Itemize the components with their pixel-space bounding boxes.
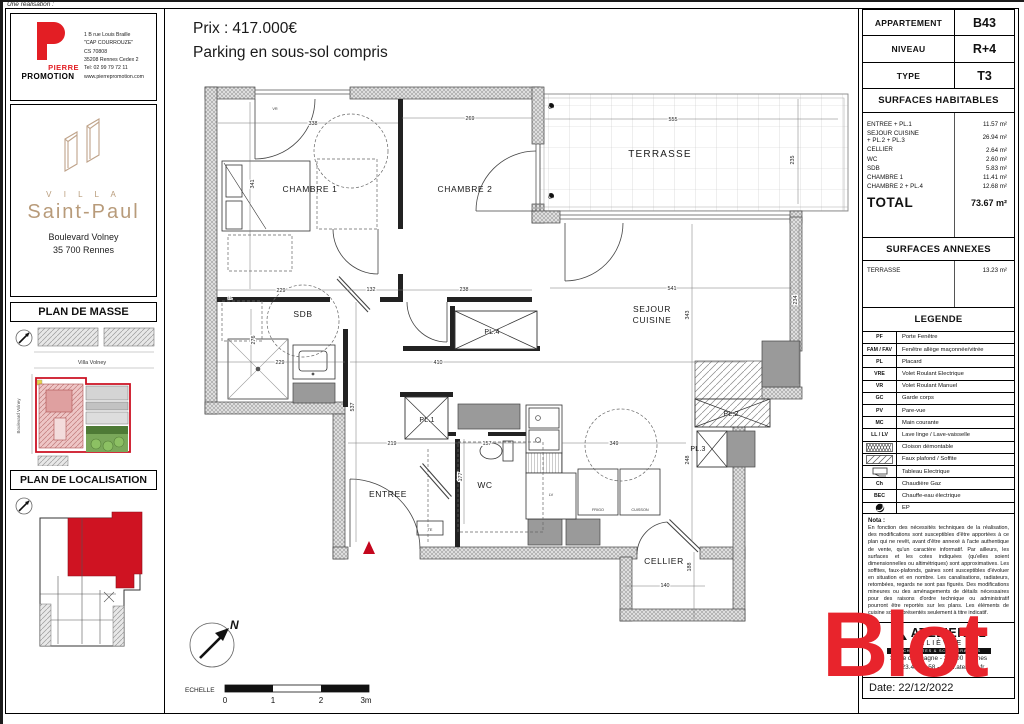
annotation: TE <box>428 528 433 532</box>
total-label: TOTAL <box>863 195 955 210</box>
surface-label: SDB <box>863 165 955 172</box>
scale-tick: 1 <box>271 696 276 705</box>
room-labels: CHAMBRE 1CHAMBRE 2TERRASSESDBSEJOURCUISI… <box>283 149 739 566</box>
info-value: T3 <box>955 63 1014 89</box>
project-name: Saint-Paul <box>11 201 156 224</box>
legend-code: VRE <box>863 368 897 379</box>
surfaces-habitables-table: ENTREE + PL.111.57 m²SEJOUR CUISINE + PL… <box>862 112 1015 238</box>
surface-label: CHAMBRE 2 + PL.4 <box>863 183 955 190</box>
surface-label: CELLIER <box>863 146 955 153</box>
surface-value: 11.41 m² <box>955 174 1014 181</box>
room-label: SDB <box>293 309 312 319</box>
annex-label: TERRASSE <box>863 267 955 274</box>
legend-row: LL / LVLave linge / Lave-vaisselle <box>862 428 1015 441</box>
surface-value: 2.60 m² <box>955 156 1014 163</box>
dimension: 132 <box>367 287 376 293</box>
legend-label: Tableau Electrique <box>897 466 1014 477</box>
duct <box>762 341 800 387</box>
dimension: 269 <box>466 116 475 122</box>
promoter-block: PIERRE PROMOTION 1 B rue Louis Braille "… <box>10 13 157 101</box>
legend-code: FAM / FAV <box>863 344 897 355</box>
ep-icon <box>863 503 897 514</box>
legend-code: PF <box>863 332 897 343</box>
dimension: 177 <box>458 473 464 482</box>
room-label: SEJOURCUISINE <box>633 304 672 325</box>
plan-de-masse-map: Villa Volney Boulevard Volney <box>12 326 156 466</box>
apartment-info-table: APPARTEMENTB43NIVEAUR+4TYPET3 <box>862 9 1015 90</box>
realisation-label: Une réalisation : <box>7 1 54 8</box>
dimension: 238 <box>460 287 469 293</box>
surface-value: 11.57 m² <box>955 121 1014 128</box>
surfaces-annexes-table: TERRASSE13.23 m² <box>862 260 1015 308</box>
dimension: 410 <box>434 360 443 366</box>
legend-row: ChChaudière Gaz <box>862 477 1015 490</box>
duct <box>528 519 562 545</box>
legend-label: EP <box>897 503 1014 514</box>
legend-label: Lave linge / Lave-vaisselle <box>897 429 1014 440</box>
plan-de-masse-title: PLAN DE MASSE <box>10 302 157 322</box>
surface-row: SEJOUR CUISINE + PL.2 + PL.326.94 m² <box>863 130 1014 145</box>
surface-value: 26.94 m² <box>955 134 1014 141</box>
surface-row: CHAMBRE 2 + PL.412.68 m² <box>863 183 1014 190</box>
price-label: Prix : <box>193 20 228 37</box>
legend-code: BEC <box>863 490 897 501</box>
room-label: PL.4 <box>484 329 499 336</box>
page-edge-left <box>0 0 3 724</box>
promoter-address: 1 B rue Louis Braille "CAP COURROUZE" CS… <box>84 22 153 81</box>
scale-tick: 2 <box>319 696 324 705</box>
legend-label: Faux plafond / Soffite <box>897 454 1014 465</box>
info-label: NIVEAU <box>863 36 955 62</box>
scale-tick: 3m <box>360 696 371 705</box>
legend-row: BECChauffe-eau électrique <box>862 489 1015 502</box>
duct <box>458 404 520 429</box>
legend-row: VREVolet Roulant Electrique <box>862 367 1015 380</box>
address-line: "CAP COURROUZE" <box>84 39 153 47</box>
legend-label: Chauffe-eau électrique <box>897 490 1014 501</box>
dimension: 188 <box>687 563 693 572</box>
legend-row: Tableau Electrique <box>862 465 1015 478</box>
room-label: CELLIER <box>644 556 684 566</box>
plan-de-localisation-map <box>12 494 156 710</box>
room-label: PL.2 <box>723 411 738 418</box>
villa-logo-icon <box>53 117 115 181</box>
nota-title: Nota : <box>868 518 1009 524</box>
surface-value: 2.64 m² <box>955 147 1014 154</box>
dimension: 235 <box>790 156 796 165</box>
project-address1: Boulevard Volney <box>11 231 156 244</box>
duct <box>727 431 755 467</box>
plan-sheet: Une réalisation : PIERRE PROMOTION 1 B r… <box>0 0 1024 724</box>
north-label: N <box>230 618 239 632</box>
duct <box>566 519 600 545</box>
surface-row: CELLIER2.64 m² <box>863 146 1014 153</box>
address-line: Tel: 02 99 79 72 11 <box>84 64 153 72</box>
legend-row: Cloison démontable <box>862 441 1015 454</box>
dimension: 341 <box>250 180 256 189</box>
surface-value: 12.68 m² <box>955 183 1014 190</box>
legend-label: Placard <box>897 356 1014 367</box>
surface-row: CHAMBRE 111.41 m² <box>863 174 1014 181</box>
annotation: LV <box>549 493 554 497</box>
scale-ticks: 0123m <box>223 696 372 705</box>
room-label: PL.3 <box>690 446 705 453</box>
surfaces-habitables-title: SURFACES HABITABLES <box>862 88 1015 113</box>
legend-row: GCGarde corps <box>862 392 1015 405</box>
info-row: NIVEAUR+4 <box>862 35 1015 63</box>
price-line: Prix :417.000€ <box>193 20 297 38</box>
page-edge-top <box>0 0 1024 2</box>
surface-row: ENTREE + PL.111.57 m² <box>863 121 1014 128</box>
legend-label: Chaudière Gaz <box>897 478 1014 489</box>
dimension: 219 <box>388 441 397 447</box>
legend-code: PV <box>863 405 897 416</box>
total-value: 73.67 m² <box>955 198 1014 208</box>
annex-value: 13.23 m² <box>955 267 1014 274</box>
info-row: APPARTEMENTB43 <box>862 9 1015 37</box>
surface-row: SDB5.83 m² <box>863 165 1014 172</box>
legend-label: Cloison démontable <box>897 442 1014 453</box>
annotation: FRIGO <box>592 508 604 512</box>
room-label: CHAMBRE 1 <box>283 184 338 194</box>
pierre-promotion-logo-icon <box>31 22 65 60</box>
price-value: 417.000€ <box>232 20 297 37</box>
annex-row: TERRASSE13.23 m² <box>863 267 1014 274</box>
crosshatch-icon <box>863 442 897 453</box>
legend-code: VR <box>863 381 897 392</box>
legend-code: PL <box>863 356 897 367</box>
dimension: 343 <box>685 311 691 320</box>
dimension: 248 <box>685 456 691 465</box>
legend-row: EP <box>862 502 1015 515</box>
legend-label: Volet Roulant Electrique <box>897 368 1014 379</box>
room-label: CHAMBRE 2 <box>438 184 493 194</box>
legend-label: Fenêtre allège maçonnée/vitrée <box>897 344 1014 355</box>
address-line: www.pierrepromotion.com <box>84 73 153 81</box>
soffite-area <box>695 361 762 399</box>
surface-label: WC <box>863 156 955 163</box>
legend-row: PFPorte Fenêtre <box>862 331 1015 344</box>
project-block: V I L L A Saint-Paul Boulevard Volney 35… <box>10 104 157 297</box>
surface-label: CHAMBRE 1 <box>863 174 955 181</box>
room-label: TERRASSE <box>628 149 692 160</box>
legend-row: VRVolet Roulant Manuel <box>862 380 1015 393</box>
room-label: ENTREE <box>369 489 407 499</box>
dimension: 140 <box>661 583 670 589</box>
address-line: 1 B rue Louis Braille <box>84 31 153 39</box>
promoter-logo: PIERRE PROMOTION <box>17 22 79 81</box>
total-row: TOTAL 73.67 m² <box>863 195 1014 210</box>
legende-title: LEGENDE <box>862 307 1015 332</box>
parking-subtitle: Parking en sous-sol compris <box>193 44 388 62</box>
address-line: 35208 Rennes Cedex 2 <box>84 56 153 64</box>
project-villa-word: V I L L A <box>11 190 156 199</box>
annotation: LL <box>228 296 232 300</box>
sidebar-separator <box>164 8 165 713</box>
dimension: 229 <box>276 360 285 366</box>
info-value: B43 <box>955 10 1014 36</box>
address-line: CS 70808 <box>84 48 153 56</box>
dimension: 157 <box>483 441 492 447</box>
entrance-marker <box>363 541 375 554</box>
blot-watermark: Blot <box>822 602 985 689</box>
legend-row: FAM / FAVFenêtre allège maçonnée/vitrée <box>862 343 1015 356</box>
masse-road-label: Boulevard Volney <box>16 398 21 434</box>
legend-label: Porte Fenêtre <box>897 332 1014 343</box>
legend-row: MCMain courante <box>862 416 1015 429</box>
legend-label: Main courante <box>897 417 1014 428</box>
dimension: 234 <box>793 296 799 305</box>
legend-label: Garde corps <box>897 393 1014 404</box>
diagonal-icon <box>863 454 897 465</box>
info-value: R+4 <box>955 36 1014 62</box>
masse-street-label: Villa Volney <box>78 360 107 366</box>
legend-table: PFPorte FenêtreFAM / FAVFenêtre allège m… <box>862 331 1015 515</box>
legend-row: PLPlacard <box>862 355 1015 368</box>
dimension: 338 <box>309 121 318 127</box>
legend-label: Pare-vue <box>897 405 1014 416</box>
legend-row: Faux plafond / Soffite <box>862 453 1015 466</box>
dimension: 537 <box>350 403 356 412</box>
legend-code: GC <box>863 393 897 404</box>
surface-label: ENTREE + PL.1 <box>863 121 955 128</box>
room-label: WC <box>477 480 492 490</box>
terrace <box>540 94 848 211</box>
legend-code: Ch <box>863 478 897 489</box>
scale-bar: ECHELLE 0123m <box>185 685 372 705</box>
project-address2: 35 700 Rennes <box>11 244 156 257</box>
dimension: 541 <box>668 286 677 292</box>
legend-code: LL / LV <box>863 429 897 440</box>
info-row: TYPET3 <box>862 62 1015 90</box>
plan-de-localisation-title: PLAN DE LOCALISATION <box>10 470 157 490</box>
scale-label: ECHELLE <box>185 687 215 694</box>
scale-tick: 0 <box>223 696 228 705</box>
surface-label: SEJOUR CUISINE + PL.2 + PL.3 <box>863 130 955 145</box>
surfaces-annexes-title: SURFACES ANNEXES <box>862 237 1015 262</box>
dimension: 276 <box>251 336 257 345</box>
legend-row: PVPare-vue <box>862 404 1015 417</box>
annotation: CUISSON <box>631 508 649 512</box>
info-label: TYPE <box>863 63 955 89</box>
legend-code: MC <box>863 417 897 428</box>
surface-row: WC2.60 m² <box>863 156 1014 163</box>
dimension: 555 <box>669 117 678 123</box>
promoter-name-line2: PROMOTION <box>17 72 79 81</box>
annotation: VR <box>272 107 278 111</box>
legend-label: Volet Roulant Manuel <box>897 381 1014 392</box>
dimension: 229 <box>277 288 286 294</box>
dimension: 349 <box>610 441 619 447</box>
room-label: PL.1 <box>419 417 434 424</box>
promoter-name-line1: PIERRE <box>17 63 79 72</box>
tableau-icon <box>863 466 897 477</box>
surface-value: 5.83 m² <box>955 165 1014 172</box>
north-arrow: N <box>190 618 239 667</box>
info-label: APPARTEMENT <box>863 10 955 36</box>
floor-plan: N ECHELLE 0123m CHAMBRE 1CHAMBRE 2TERRAS… <box>170 84 865 716</box>
